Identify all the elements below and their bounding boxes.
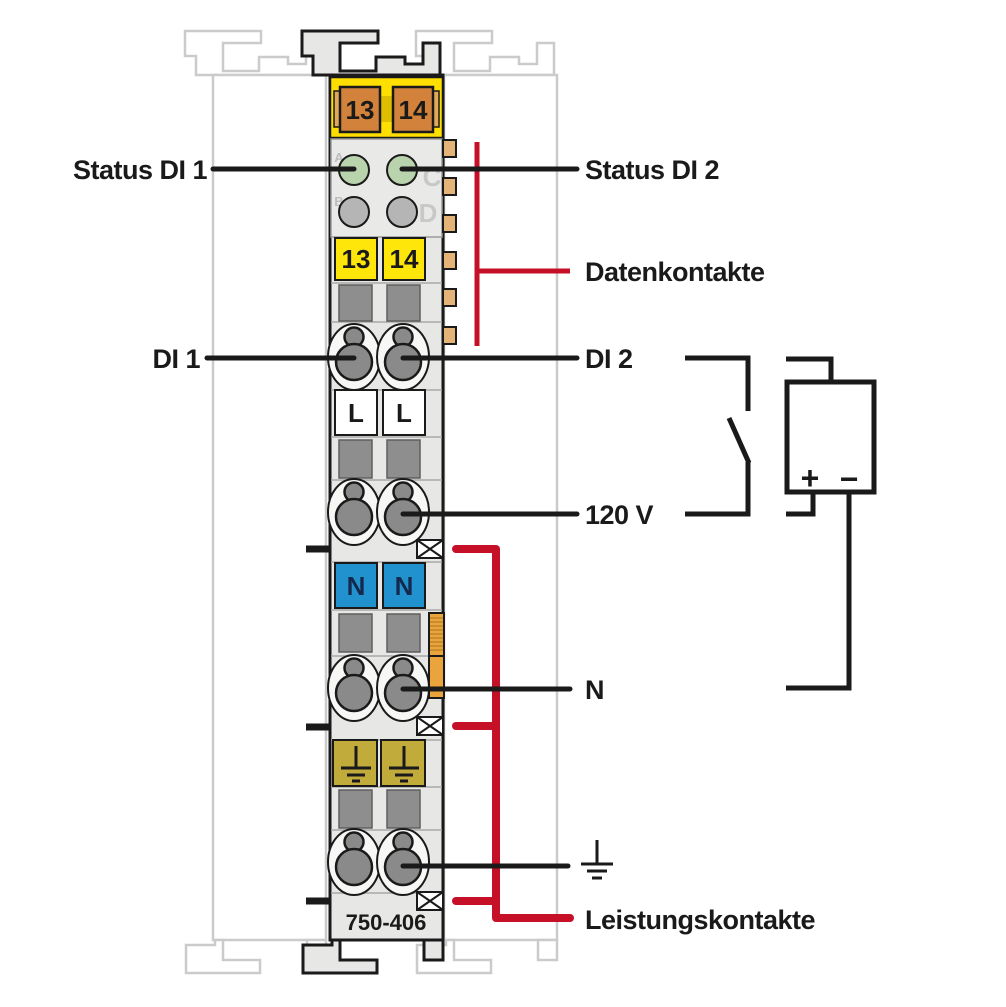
jumper-contact-13-label: 13 xyxy=(346,95,375,125)
top-power-jumper-band: 13 14 xyxy=(330,77,443,138)
wiring-diagram-page: 13 14 A B C D 13 14 xyxy=(0,0,1006,1007)
led-letter-d: D xyxy=(419,198,438,228)
wire-entry xyxy=(339,285,372,321)
terminal-label-14-text: 14 xyxy=(390,244,419,274)
data-contact xyxy=(443,289,456,306)
label-leistungskontakte: Leistungskontakte xyxy=(585,905,816,935)
module-foot-notch xyxy=(424,940,443,960)
label-120v: 120 V xyxy=(585,500,654,530)
module-order-number: 750-406 xyxy=(346,910,427,935)
label-di-2: DI 2 xyxy=(585,344,633,374)
wire-entry xyxy=(339,790,372,828)
data-contact xyxy=(443,252,456,269)
label-status-di-1: Status DI 1 xyxy=(73,155,208,185)
cage-clamp xyxy=(336,344,372,380)
n-label-left-text: N xyxy=(347,571,366,601)
cage-clamp xyxy=(385,675,421,711)
switch-top-wire xyxy=(685,358,748,411)
wiring-diagram: 13 14 A B C D 13 14 xyxy=(0,0,1006,1007)
wire-entry xyxy=(387,285,420,321)
wire-entry xyxy=(339,440,372,478)
switch-bottom-wire xyxy=(685,462,748,514)
wire-entry xyxy=(387,614,420,652)
cage-clamp xyxy=(336,849,372,885)
external-circuit: + − xyxy=(685,358,874,688)
power-source-minus-lead xyxy=(786,492,849,688)
earth-ground-symbol xyxy=(581,840,613,878)
jumper-contact-14-label: 14 xyxy=(399,95,428,125)
label-datenkontakte: Datenkontakte xyxy=(585,257,765,287)
minus-sign: − xyxy=(840,461,859,497)
wire-entry xyxy=(387,790,420,828)
power-jumper-knife-contact xyxy=(429,613,444,698)
cage-clamp xyxy=(336,499,372,535)
power-source-top-lead xyxy=(786,359,831,382)
data-contact xyxy=(443,140,456,157)
cage-clamp xyxy=(336,675,372,711)
led-block: A B C D xyxy=(331,139,442,237)
terminal-label-13-text: 13 xyxy=(342,244,371,274)
data-contact xyxy=(443,178,456,195)
label-status-di-2: Status DI 2 xyxy=(585,155,719,185)
led-b-gray xyxy=(339,197,369,227)
cage-clamp xyxy=(385,499,421,535)
module-foot xyxy=(303,940,377,973)
data-contact xyxy=(443,327,456,344)
label-di-1: DI 1 xyxy=(152,344,200,374)
label-n: N xyxy=(585,675,604,705)
plus-sign: + xyxy=(801,460,820,496)
cage-clamp xyxy=(385,344,421,380)
n-label-right-text: N xyxy=(395,571,414,601)
data-contact xyxy=(443,215,456,232)
jumper-link xyxy=(380,96,393,122)
led-d-gray xyxy=(387,197,417,227)
wire-entry xyxy=(339,614,372,652)
l-label-right-text: L xyxy=(396,398,412,428)
wire-entry xyxy=(387,440,420,478)
switch-blade xyxy=(729,418,749,463)
l-label-left-text: L xyxy=(348,398,364,428)
